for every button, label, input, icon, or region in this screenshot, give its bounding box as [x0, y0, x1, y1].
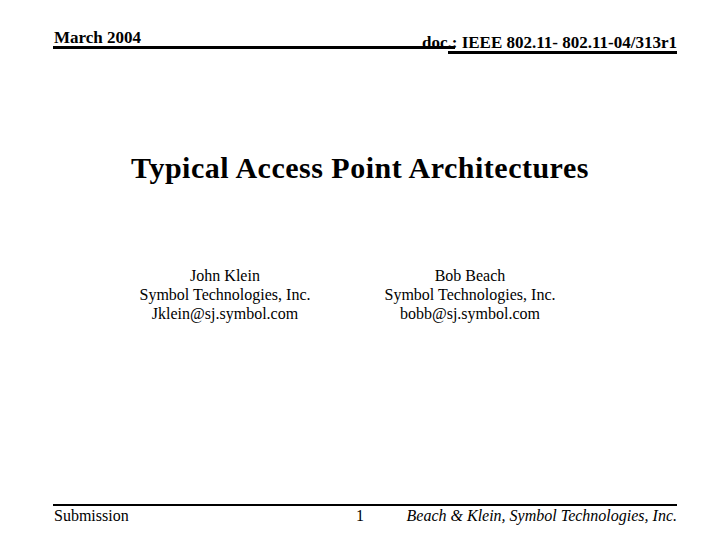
footer-attribution: Beach & Klein, Symbol Technologies, Inc.: [407, 507, 677, 525]
header-date: March 2004: [54, 28, 141, 48]
author-block-right: Bob Beach Symbol Technologies, Inc. bobb…: [320, 266, 620, 323]
author-name: Bob Beach: [320, 266, 620, 285]
author-organization: Symbol Technologies, Inc.: [320, 285, 620, 304]
author-email: bobb@sj.symbol.com: [320, 304, 620, 323]
header-rule-right: [448, 51, 677, 54]
footer-rule: [53, 504, 677, 506]
header-rule-left: [53, 46, 455, 49]
header-doc-number: doc.: IEEE 802.11- 802.11-04/313r1: [422, 33, 677, 53]
slide: March 2004 doc.: IEEE 802.11- 802.11-04/…: [0, 0, 720, 540]
slide-title: Typical Access Point Architectures: [0, 151, 720, 185]
